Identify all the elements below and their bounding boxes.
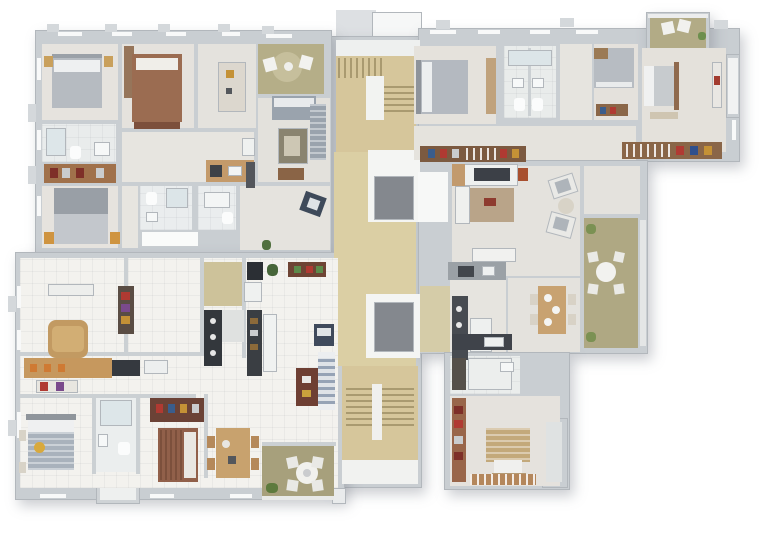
counter-bl-2-item-3: [250, 344, 258, 350]
stair-upper-steps-top: [338, 58, 382, 78]
desk-white-r: [472, 248, 516, 262]
sink-tl-bath1: [94, 142, 110, 156]
kitchen-tl-fridge: [242, 138, 255, 156]
wall-tab-left-3: [8, 296, 16, 312]
nightstand-tl-1-right: [104, 56, 113, 67]
bed-master: [654, 66, 674, 106]
toilet-tr-bath-2: [532, 98, 543, 111]
nightstand-tl-1-left: [44, 56, 53, 67]
floor-core-top-landing: [336, 40, 420, 56]
tv-cabinet-bl: [296, 368, 318, 406]
tv-unit-tl: [246, 162, 255, 188]
counter-grey-sink: [482, 266, 495, 276]
dining-chair-r-1: [530, 294, 538, 305]
counter-bl-2-item-1: [250, 318, 258, 324]
bed-master-frame: [674, 62, 679, 110]
wall-tab-left-4: [8, 420, 16, 436]
nightstand-tl-2-right: [110, 232, 120, 244]
wardrobe-tl-item-2: [62, 168, 70, 178]
wall-tab-top-1: [47, 24, 59, 32]
bed-bl-3-stripes: [160, 430, 182, 480]
wardrobe-bl3-item-1: [156, 404, 163, 413]
wall-bl-b: [20, 352, 202, 356]
window-bl-left-1: [17, 286, 21, 308]
dining-bl-chair-1: [207, 436, 215, 448]
kitchen-tr-red-item: [518, 168, 528, 181]
dining-bl-item-2: [228, 456, 236, 464]
elevator-2-car: [374, 302, 414, 352]
dresser-br: [470, 474, 536, 485]
counter-grey-hob: [458, 266, 474, 277]
shelf-red-item-3: [316, 266, 323, 273]
balcony-r-chair-1: [587, 251, 599, 263]
wardrobe-bl3-item-2: [168, 404, 175, 413]
dining-plate-r-3: [544, 318, 552, 326]
bed-tl-2: [54, 214, 108, 244]
window-tl-top-1: [58, 32, 82, 36]
bed-tr-2-edge: [596, 82, 632, 87]
wardrobe-band-tr-item-1: [676, 146, 684, 155]
dresser-master-item: [714, 76, 720, 85]
balcony-r-plant-1: [586, 224, 596, 234]
balcony-tr-plant: [698, 32, 706, 40]
wall-bl-e: [92, 396, 96, 474]
dining-chair-r-2: [530, 314, 538, 325]
kitchen-col-knob-2: [456, 322, 462, 328]
balcony-bl-plant: [266, 483, 278, 493]
wardrobe-br-item-4: [454, 452, 463, 460]
floor-stair-bottom-landing: [342, 460, 418, 484]
window-bl-bottom-3: [230, 494, 252, 498]
counter-bl-2-item-2: [250, 330, 258, 336]
coffee-table-tl: [284, 136, 300, 156]
kitchen-bl-counter: [24, 358, 112, 378]
balcony-r-chair-2: [613, 251, 625, 263]
wardrobe-bl3-item-4: [192, 404, 199, 413]
sofa-tl-cushions: [274, 98, 314, 107]
kitchen-bl-hob: [112, 360, 140, 376]
floor-porch-inner: [100, 488, 136, 500]
bath-br-cabinet: [452, 358, 466, 390]
kitchen-band-tr-item-2: [440, 149, 447, 158]
window-tl-top-5: [266, 34, 292, 38]
balcony-r-table: [596, 262, 616, 282]
floor-tl-corridor-2: [122, 186, 138, 248]
shower-bl: [100, 400, 132, 426]
window-bl-left-2: [17, 330, 21, 350]
kitchen-bl-sink: [144, 360, 168, 374]
wall-bl-balcony-top: [262, 442, 336, 446]
shelf-red-item-2: [306, 266, 313, 273]
window-tl-top-4: [222, 32, 240, 36]
wall-tab-top-5: [262, 26, 274, 34]
kitchen-band-tr-item-3: [452, 149, 459, 158]
bed-tr-1-pillows: [422, 62, 432, 112]
balcony-bl-table-item: [303, 469, 311, 477]
elevator-1-car: [374, 176, 414, 220]
door-threshold-tl: [142, 232, 198, 246]
toilet-tl-bath1: [70, 146, 81, 159]
railing-tr-balcony: [648, 14, 708, 18]
floor-bl-kitchen-tan: [202, 262, 242, 306]
balcony-bl-chair-1: [286, 456, 299, 469]
dining-plate-r-1: [544, 294, 552, 302]
bed-br-blanket: [486, 428, 530, 462]
sink-bl: [98, 434, 108, 447]
dining-chair-r-4: [568, 314, 576, 325]
wardrobe-bl-item-2: [121, 304, 130, 312]
kitchen-col-knob-1: [456, 306, 462, 312]
balcony-tr-chair-1: [661, 21, 675, 35]
stair-lower-steps-right: [382, 388, 414, 426]
wall-tab-tr-2: [560, 18, 574, 27]
window-tr-top-2: [478, 30, 500, 34]
wardrobe-tl-item-4: [96, 168, 104, 178]
toilet-tr-bath-1: [514, 98, 525, 111]
kitchen-band-tr-item-4: [500, 149, 507, 158]
shelf-red-item-1: [294, 266, 301, 273]
floor-tr-duct-white: [418, 172, 448, 222]
shower-tr-bath: [508, 50, 552, 66]
window-tl-top-2: [112, 32, 132, 36]
counter-bl-1-knob-2: [210, 334, 216, 340]
kitchen-tl-stove: [210, 165, 222, 177]
stair-lower-steps-left: [346, 388, 373, 426]
wardrobe-bl3-item-3: [180, 404, 187, 413]
sofa-bl-arm-top: [318, 352, 335, 358]
dining-bl-chair-3: [251, 436, 259, 448]
plant-bl-kitchen: [267, 264, 278, 276]
window-tl-top-3: [166, 32, 186, 36]
wall-tab-left-1: [28, 104, 36, 122]
bed-tl-2-canopy: [54, 188, 108, 214]
dining-table-bl: [216, 428, 250, 478]
window-tl-left-2: [37, 130, 41, 150]
floor-tr-corridor: [560, 44, 592, 120]
desk-study-item-2: [226, 88, 232, 94]
counter-bl-1-knob-3: [210, 350, 216, 356]
kitchen-bl-knob-3: [58, 364, 65, 372]
wall-tab-top-4: [218, 24, 230, 32]
slab-stair-step-out: [332, 488, 346, 504]
shower-tl-bath2: [166, 188, 188, 208]
wardrobe-band-tr-hangers: [626, 144, 670, 157]
toilet-tl-bath3: [222, 212, 233, 224]
balcony-r-plant-2: [586, 332, 596, 342]
bath-br-sink: [500, 362, 514, 372]
wardrobe-band-tr-item-3: [704, 146, 712, 155]
side-table-r: [558, 198, 574, 214]
wall-tab-top-2: [105, 24, 117, 32]
balcony-bl-chair-3: [286, 479, 298, 491]
balcony-bl-chair-4: [311, 479, 323, 491]
kitchen-band-tr-hangers: [466, 148, 496, 160]
stair-lower-divider: [372, 384, 382, 440]
shower-tl-bath1: [46, 128, 66, 156]
dresser-master: [712, 62, 722, 108]
dining-plate-r-2: [552, 306, 560, 314]
shelf-bl-item-purple: [56, 382, 64, 391]
wardrobe-bl-item-3: [121, 316, 130, 324]
armchair-bl-seat: [317, 328, 331, 336]
shelf-bl-item-red: [40, 382, 48, 391]
tv-cabinet-bl-item-1: [302, 376, 311, 383]
wall-bl-f: [136, 396, 140, 474]
bed-bl-3-duvet: [184, 432, 196, 478]
counter-bl-1-knob-1: [210, 318, 216, 324]
kitchen-tr-hob: [474, 168, 510, 181]
wardrobe-br-item-3: [454, 436, 463, 444]
sofa-bl: [318, 352, 335, 410]
balcony-r-chair-3: [587, 283, 598, 294]
wardrobe-tr-1: [486, 58, 496, 114]
kitchen-band-tr-item-1: [428, 149, 435, 158]
kitchen-br-sink: [484, 337, 504, 347]
balcony-r-chair-4: [613, 283, 624, 294]
window-master-balconette: [728, 58, 738, 114]
sink-tl-bath2: [146, 212, 158, 222]
counter-grey-r: [448, 262, 506, 280]
sofa-tl-chaise: [310, 104, 326, 160]
floor-tr-living-east: [584, 166, 640, 214]
window-tl-left-1: [37, 58, 41, 80]
sink-tr-bath-2: [532, 78, 544, 88]
dining-chair-r-3: [568, 294, 576, 305]
kitchen-tr-cabinet: [452, 164, 465, 186]
wardrobe-tl-item-3: [76, 168, 84, 178]
wardrobe-br-item-2: [454, 420, 463, 428]
fridge-bl: [263, 314, 277, 372]
cabinet-tr-2-item-2: [610, 107, 616, 114]
window-master-right-1: [732, 120, 736, 140]
balcony-bl-chair-2: [311, 456, 324, 469]
tub-tl-bath3: [204, 192, 230, 208]
wall-tab-top-3: [158, 24, 170, 32]
balcony-tl-table: [284, 62, 293, 71]
cabinet-tr-2-item-1: [600, 107, 606, 114]
side-table-bl-2: [19, 462, 26, 473]
wall-tab-left-2: [28, 166, 36, 184]
floor-plan-canvas: [0, 0, 760, 546]
bed-master-bench: [650, 112, 678, 119]
railing-right-balcony: [640, 220, 646, 346]
kitchen-tl-sink: [228, 166, 242, 176]
stair-upper-mid-landing: [366, 76, 384, 120]
floor-tr-foyer-tan: [420, 286, 450, 352]
railing-bl-balcony: [262, 496, 334, 500]
toilet-tl-bath2: [146, 192, 157, 205]
side-table-bl-1: [19, 430, 26, 441]
kitchen-bl-knob-1: [30, 364, 37, 372]
window-tr-top-3: [530, 30, 550, 34]
bed-master-pillows: [644, 66, 654, 106]
dining-bl-chair-4: [251, 458, 259, 470]
sofa-bl-arm-bottom: [318, 404, 335, 410]
bed-tl-1-pillows: [54, 60, 100, 72]
bed-tl-3-bench: [134, 122, 180, 129]
floor-br-balconette: [546, 422, 562, 482]
bed-bl-2-pillows: [28, 420, 74, 432]
stair-upper-steps-right: [384, 86, 414, 114]
kitchen-bl-knob-2: [44, 364, 51, 372]
wardrobe-tl-item-1: [50, 168, 58, 178]
dining-bl-chair-2: [207, 458, 215, 470]
sink-block-bl: [244, 282, 262, 302]
sink-tr-bath-1: [512, 78, 524, 88]
window-tr-top-4: [576, 30, 598, 34]
dining-bl-item-1: [222, 440, 230, 448]
bed-bl-gold-inner: [52, 326, 84, 352]
window-bl-bottom-2: [150, 494, 174, 498]
countertop-bl: [222, 310, 244, 342]
desk-study-item-1: [226, 70, 234, 78]
dresser-bl-top: [48, 284, 94, 296]
wall-bl-d: [242, 258, 246, 358]
wall-tab-tr-3: [714, 20, 728, 29]
bed-br-pillows: [494, 460, 522, 473]
plant-tl-foyer: [262, 240, 271, 250]
coffee-table-r: [484, 198, 496, 206]
wardrobe-bl-item-1: [121, 292, 130, 300]
console-tl: [278, 168, 304, 180]
toilet-bl: [118, 442, 130, 455]
window-tl-left-3: [37, 196, 41, 216]
window-bl-bottom-1: [40, 494, 66, 498]
wall-tab-tr-1: [436, 20, 450, 29]
kitchen-band-tr-item-5: [512, 149, 519, 158]
bed-tr-2-mat: [594, 48, 608, 59]
nightstand-tl-2-left: [44, 232, 54, 244]
wardrobe-band-tr-item-2: [690, 146, 698, 155]
bed-bl-2-cushion: [34, 442, 45, 453]
wardrobe-br-item-1: [454, 406, 463, 414]
tv-cabinet-bl-item-2: [302, 390, 311, 397]
bed-tl-3-pillows: [136, 58, 178, 70]
console-living-r: [455, 186, 470, 224]
stove-bl-black: [247, 262, 263, 280]
window-tr-top-1: [430, 30, 456, 34]
